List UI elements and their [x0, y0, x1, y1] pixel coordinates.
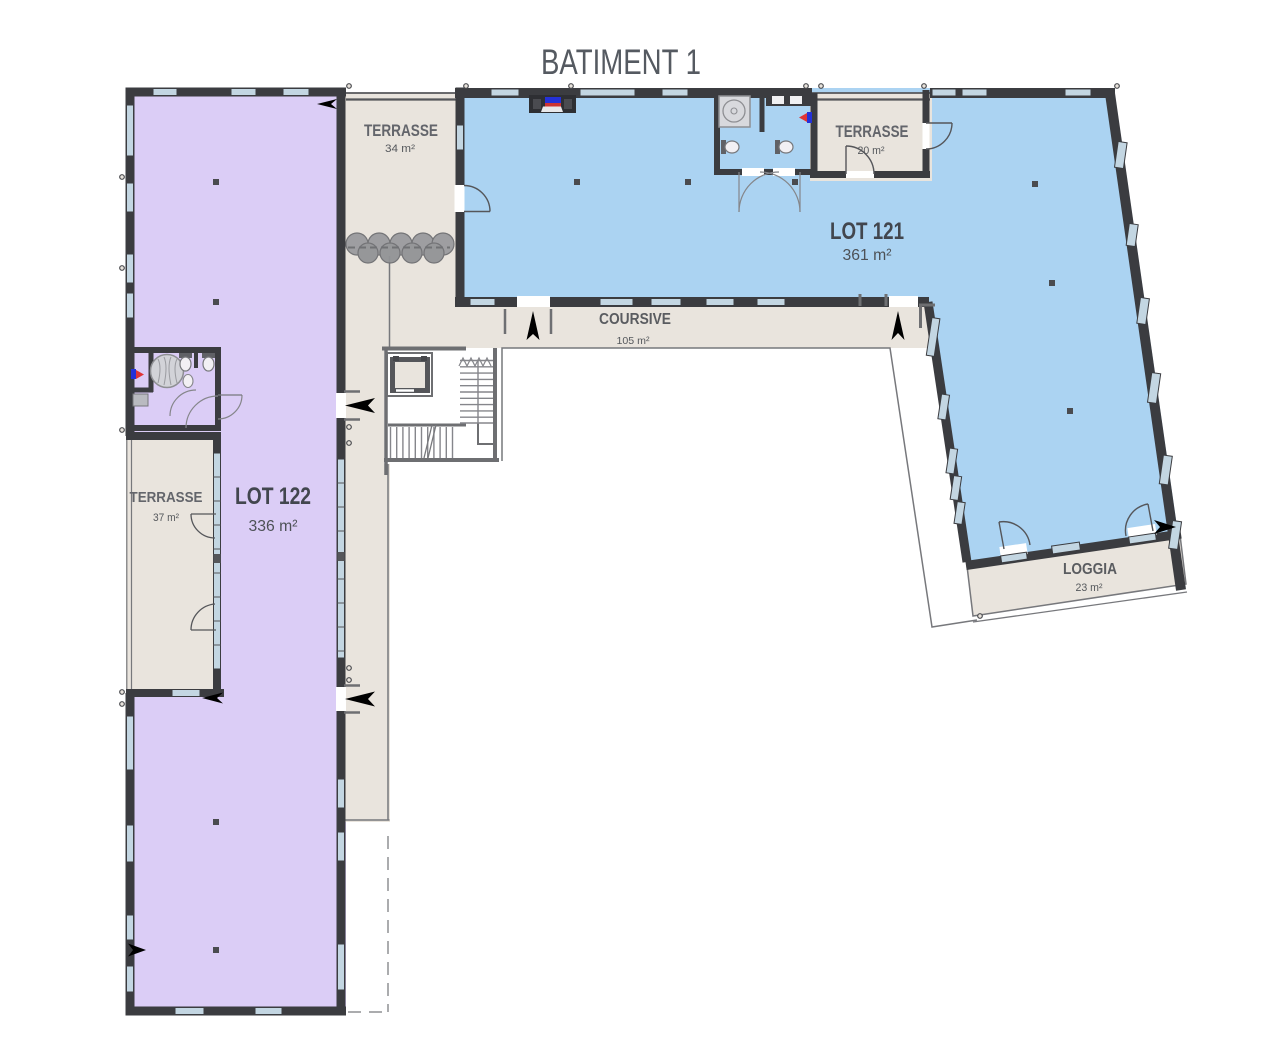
svg-text:TERRASSE: TERRASSE [364, 121, 438, 140]
svg-text:LOT 122: LOT 122 [235, 483, 311, 510]
svg-text:LOT 121: LOT 121 [830, 218, 904, 245]
svg-text:TERRASSE: TERRASSE [130, 489, 203, 506]
svg-text:361 m²: 361 m² [843, 247, 893, 264]
svg-text:TERRASSE: TERRASSE [836, 123, 909, 141]
svg-text:BATIMENT 1: BATIMENT 1 [541, 43, 701, 82]
svg-text:LOGGIA: LOGGIA [1063, 561, 1117, 578]
svg-text:23 m²: 23 m² [1076, 582, 1103, 594]
svg-text:20 m²: 20 m² [858, 145, 885, 157]
svg-text:34 m²: 34 m² [385, 143, 415, 155]
svg-text:336 m²: 336 m² [249, 518, 299, 535]
svg-text:37 m²: 37 m² [153, 512, 179, 524]
svg-text:COURSIVE: COURSIVE [599, 311, 671, 328]
svg-text:105 m²: 105 m² [617, 335, 650, 347]
